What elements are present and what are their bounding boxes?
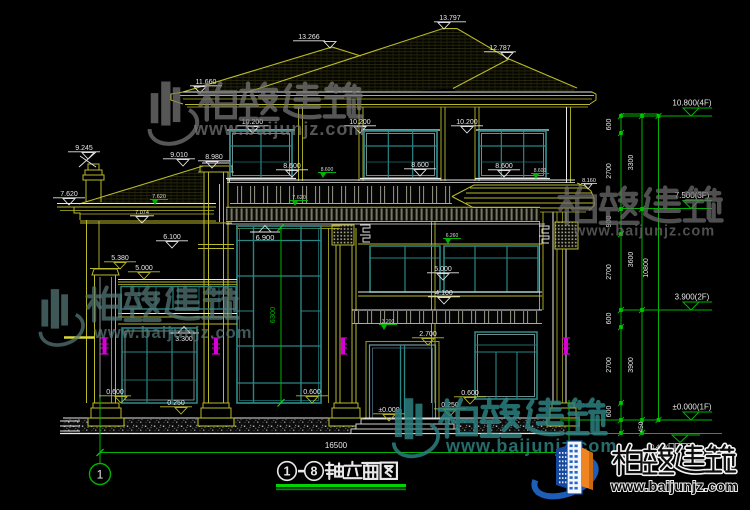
- svg-text:6.100: 6.100: [163, 234, 181, 241]
- svg-text:www.baijunjz.com: www.baijunjz.com: [193, 119, 365, 139]
- svg-text:2700: 2700: [606, 163, 613, 179]
- svg-text:8: 8: [311, 465, 318, 479]
- svg-text:12.787: 12.787: [489, 45, 511, 52]
- svg-text:10.800(4F): 10.800(4F): [672, 99, 711, 108]
- svg-text:600: 600: [606, 119, 613, 131]
- svg-text:6.900: 6.900: [256, 233, 275, 242]
- svg-text:8.600: 8.600: [283, 163, 301, 170]
- svg-text:3300: 3300: [628, 155, 635, 171]
- svg-text:3.900(2F): 3.900(2F): [675, 293, 710, 302]
- svg-text:3900: 3900: [628, 357, 635, 373]
- svg-text:2700: 2700: [606, 357, 613, 373]
- svg-text:10.200: 10.200: [456, 119, 478, 126]
- svg-text:450: 450: [638, 421, 645, 432]
- svg-text:600: 600: [606, 313, 613, 325]
- svg-text:9.010: 9.010: [170, 152, 188, 159]
- svg-text:www.baijunjz.com: www.baijunjz.com: [610, 478, 738, 494]
- svg-text:0.600: 0.600: [461, 390, 479, 397]
- svg-text:www.baijunjz.com: www.baijunjz.com: [93, 324, 252, 342]
- svg-text:0.600: 0.600: [303, 389, 321, 396]
- svg-text:1: 1: [284, 465, 291, 479]
- svg-text:5.000: 5.000: [135, 265, 153, 272]
- svg-text:13.797: 13.797: [439, 15, 461, 22]
- svg-text:5.380: 5.380: [111, 255, 129, 262]
- svg-text:8.600: 8.600: [411, 162, 429, 169]
- svg-text:5.000: 5.000: [434, 266, 452, 273]
- svg-text:16500: 16500: [325, 441, 348, 450]
- svg-text:6300: 6300: [268, 307, 277, 324]
- svg-text:www.baijunjz.com: www.baijunjz.com: [573, 223, 715, 239]
- svg-text:1: 1: [97, 468, 104, 482]
- svg-text:13.266: 13.266: [298, 34, 320, 41]
- svg-text:3600: 3600: [628, 252, 635, 268]
- svg-text:8.980: 8.980: [205, 154, 223, 161]
- svg-text:±0.000(1F): ±0.000(1F): [672, 403, 711, 412]
- svg-text:7.620: 7.620: [60, 191, 78, 198]
- svg-text:4.100: 4.100: [435, 290, 453, 297]
- svg-text:2.700: 2.700: [419, 331, 437, 338]
- svg-text:0.250: 0.250: [167, 400, 185, 407]
- svg-text:10800: 10800: [643, 258, 650, 278]
- svg-text:8.600: 8.600: [495, 163, 513, 170]
- svg-text:0.600: 0.600: [106, 389, 124, 396]
- svg-text:7.074: 7.074: [135, 210, 149, 216]
- svg-text:2700: 2700: [606, 264, 613, 280]
- svg-text:9.245: 9.245: [75, 145, 93, 152]
